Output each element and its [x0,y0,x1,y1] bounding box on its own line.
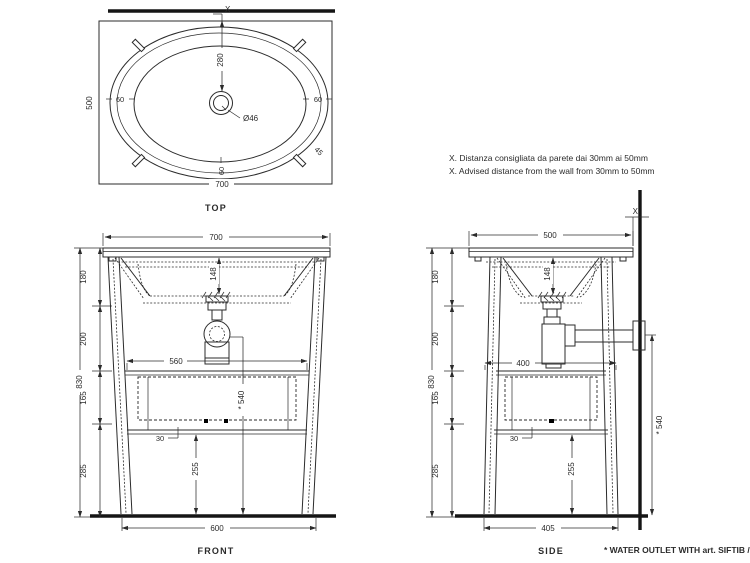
side-shelf [494,371,608,434]
note-water-outlet: * WATER OUTLET WITH art. SIFTIB / SIFN [604,545,750,555]
side-drain-trap [541,296,645,368]
front-height-chain: 830 180 200 165 285 [74,248,112,517]
front-drain-trap [204,296,230,364]
dim-front-feet-width: 600 [210,524,224,533]
dim-drain-diameter: Ø46 [243,114,259,123]
dim-tap-angle: 45 [313,145,325,157]
view-label-top: TOP [205,203,227,213]
dim-front-shelf-inset: 30 [156,434,164,443]
countertop [103,248,330,257]
dim-side-seg1: 180 [431,270,440,284]
dim-side-basin-depth: 148 [543,267,552,281]
dim-front-seg3: 165 [79,391,88,405]
dim-drain-offset: 280 [216,53,225,67]
dim-rim-left: 60 [116,95,124,104]
dim-side-seg2: 200 [431,332,440,346]
dim-rim-right: 60 [314,95,322,104]
note-english: X. Advised distance from the wall from 3… [449,166,655,176]
dim-side-overall-height: 830 [427,375,436,389]
dim-side-shelf-depth: 400 [516,359,530,368]
side-view: 500 X [426,190,664,556]
dim-front-shelf-width: 560 [169,357,183,366]
dim-front-clearance: 255 [191,462,200,476]
wall-gap-mark: X [225,5,231,14]
dim-top-width: 700 [215,180,229,189]
dim-side-feet-depth: 405 [541,524,555,533]
hatch [538,292,566,298]
view-label-front: FRONT [198,546,235,556]
side-height-chain: 830 180 200 165 285 [426,248,469,517]
dim-top-depth: 500 [85,96,94,110]
front-view: 700 [74,232,336,556]
dim-front-seg4: 285 [79,464,88,478]
technical-drawing: X 45 Ø46 280 60 60 60 500 700 [0,0,750,563]
dim-side-seg4: 285 [431,464,440,478]
drawing-canvas: X 45 Ø46 280 60 60 60 500 700 [0,0,750,563]
note-italian: X. Distanza consigliata da parete dai 30… [449,153,648,163]
dim-side-outlet-height: * 540 [655,415,664,434]
dim-front-basin-depth: 148 [209,267,218,281]
top-view: X 45 Ø46 280 60 60 60 500 700 [84,5,335,213]
view-label-side: SIDE [538,546,564,556]
front-shelf [125,371,309,434]
wall-gap-mark-side: X [633,207,639,216]
drain-hole [214,96,229,111]
dim-front-overall-height: 830 [75,375,84,389]
dim-front-width: 700 [209,233,223,242]
wall-distance-notes: X. Distanza consigliata da parete dai 30… [449,153,655,176]
dim-front-seg1: 180 [79,270,88,284]
dim-front-outlet-height: * 540 [237,390,246,409]
dim-side-clearance: 255 [567,462,576,476]
countertop-side [469,248,633,257]
dim-front-seg2: 200 [79,332,88,346]
drain-leader [228,110,240,118]
dim-side-shelf-inset: 30 [510,434,518,443]
dim-rim-bottom: 60 [217,167,226,175]
dim-side-depth: 500 [543,231,557,240]
dim-side-seg3: 165 [431,391,440,405]
